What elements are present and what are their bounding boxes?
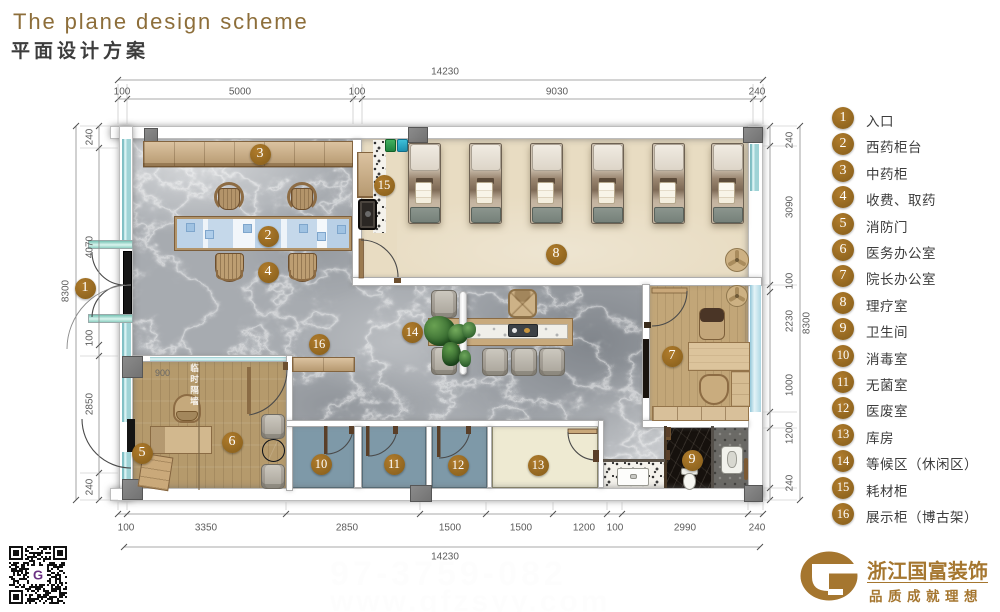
svg-text:G: G	[33, 568, 43, 583]
